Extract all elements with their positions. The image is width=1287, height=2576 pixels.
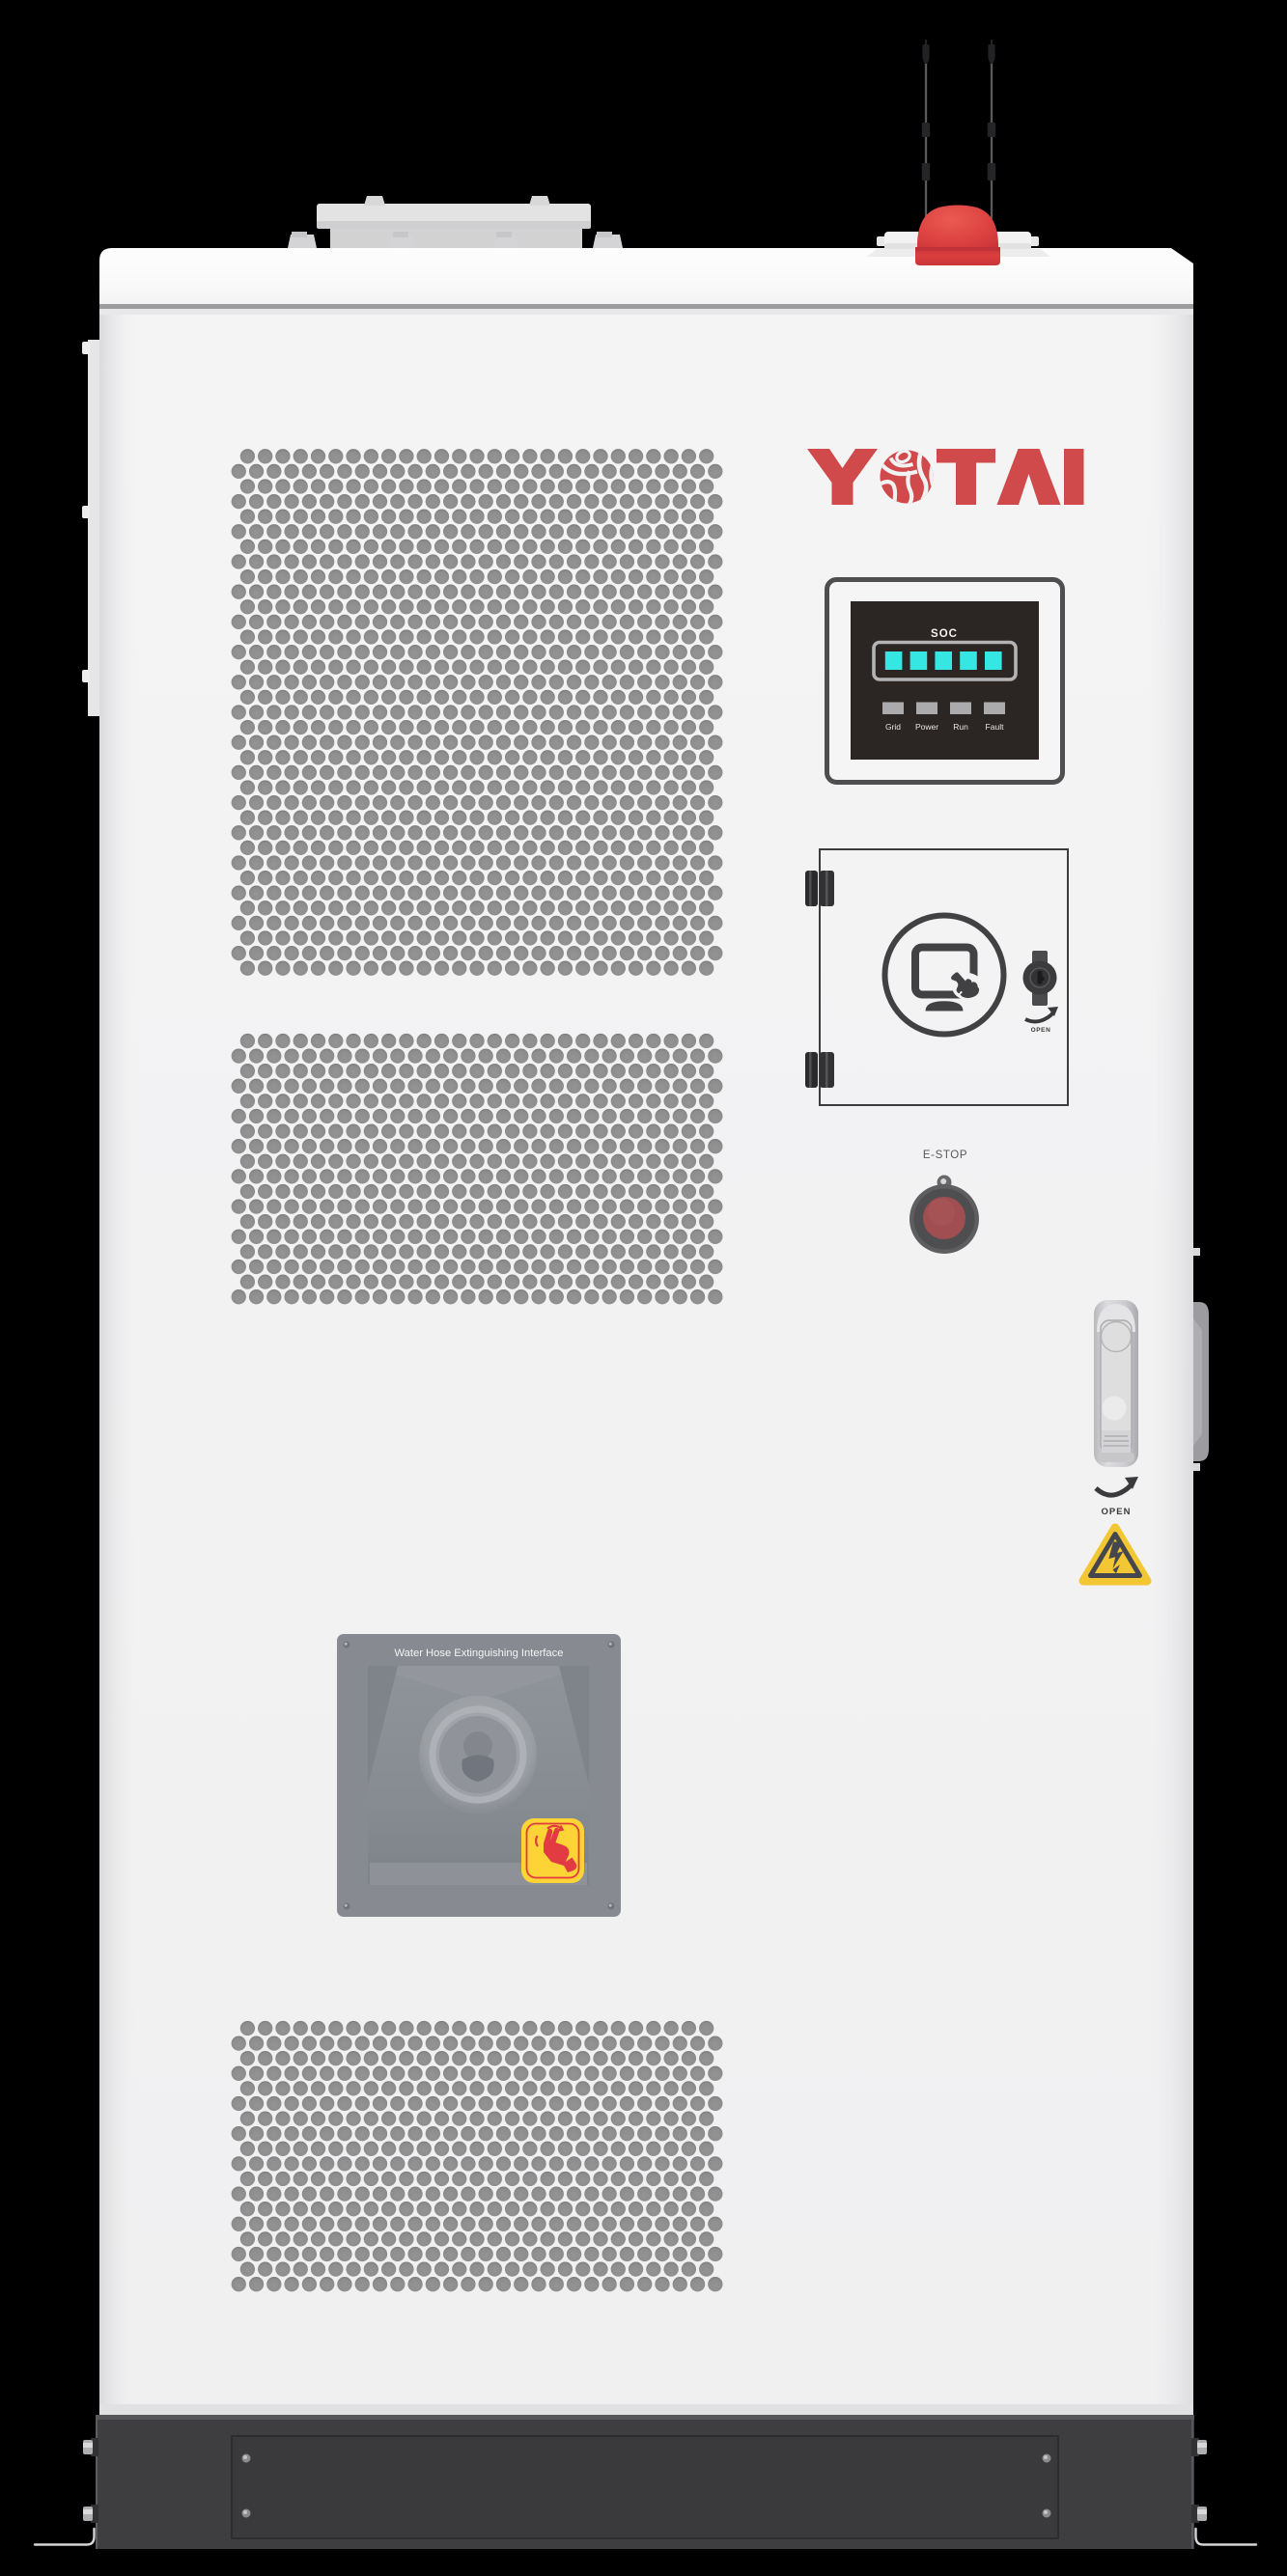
svg-text:Water Hose Extinguishing Inter: Water Hose Extinguishing Interface	[395, 1648, 564, 1659]
svg-text:Fault: Fault	[986, 722, 1005, 732]
svg-text:OPEN: OPEN	[1031, 1027, 1051, 1034]
svg-text:Run: Run	[953, 722, 968, 732]
svg-text:Grid: Grid	[885, 722, 901, 732]
svg-text:OPEN: OPEN	[1102, 1507, 1132, 1517]
svg-text:E-STOP: E-STOP	[923, 1150, 967, 1161]
svg-text:SOC: SOC	[931, 628, 958, 640]
svg-text:Power: Power	[915, 722, 938, 732]
